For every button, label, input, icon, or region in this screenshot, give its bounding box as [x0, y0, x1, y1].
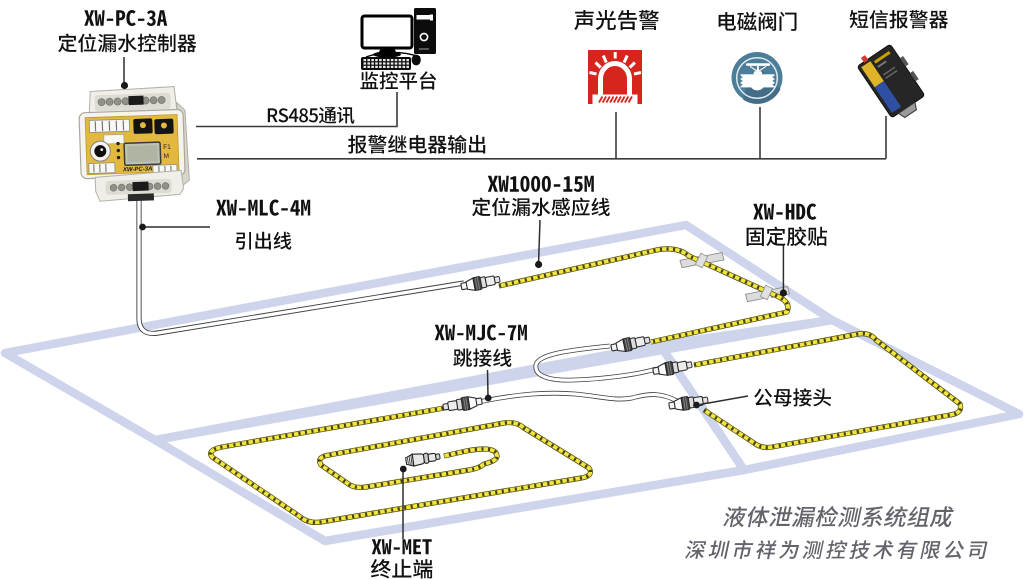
svg-text:XW-PC-3A: XW-PC-3A	[122, 166, 153, 173]
svg-text:M: M	[163, 153, 169, 160]
svg-text:F1: F1	[163, 144, 171, 151]
